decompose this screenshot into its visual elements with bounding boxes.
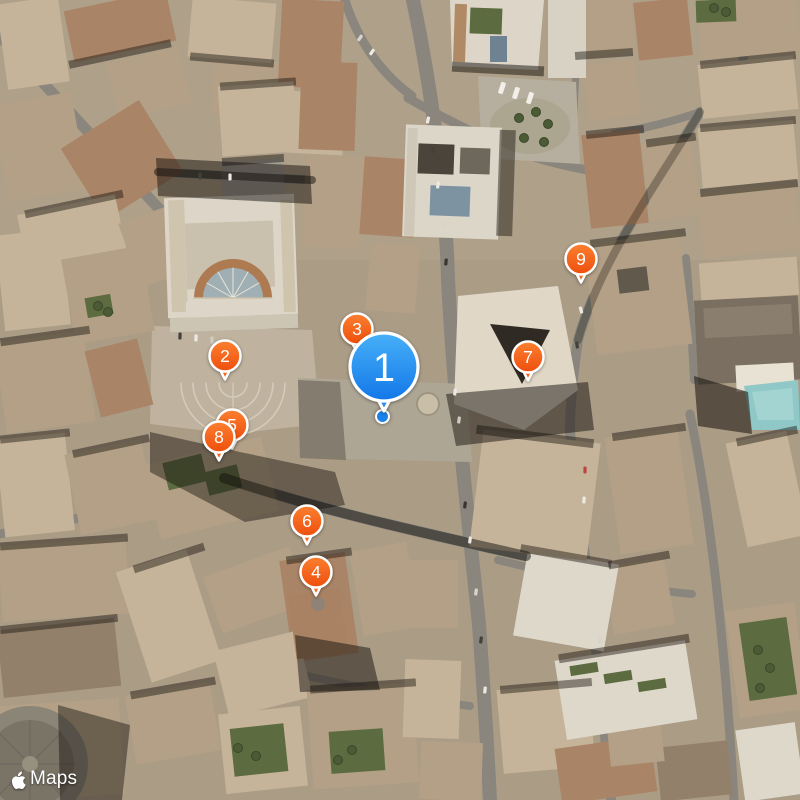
apple-maps-satellite-view[interactable]: 123456789 Maps — [0, 0, 800, 800]
map-marker-7[interactable]: 7 — [506, 335, 550, 402]
svg-text:8: 8 — [214, 427, 224, 447]
map-marker-8[interactable]: 8 — [197, 415, 241, 482]
svg-text:7: 7 — [523, 347, 533, 367]
svg-text:6: 6 — [302, 511, 312, 531]
map-marker-1[interactable]: 1 — [338, 321, 430, 438]
apple-maps-attribution[interactable]: Maps — [10, 768, 77, 790]
svg-text:9: 9 — [576, 249, 586, 269]
svg-text:1: 1 — [373, 346, 395, 390]
maps-logo-label: Maps — [30, 768, 77, 790]
map-marker-6[interactable]: 6 — [285, 499, 329, 566]
svg-text:2: 2 — [220, 346, 230, 366]
map-marker-2[interactable]: 2 — [203, 334, 247, 401]
apple-logo-icon — [10, 770, 26, 789]
marker-layer: 123456789 — [0, 0, 800, 800]
map-marker-9[interactable]: 9 — [559, 237, 603, 304]
